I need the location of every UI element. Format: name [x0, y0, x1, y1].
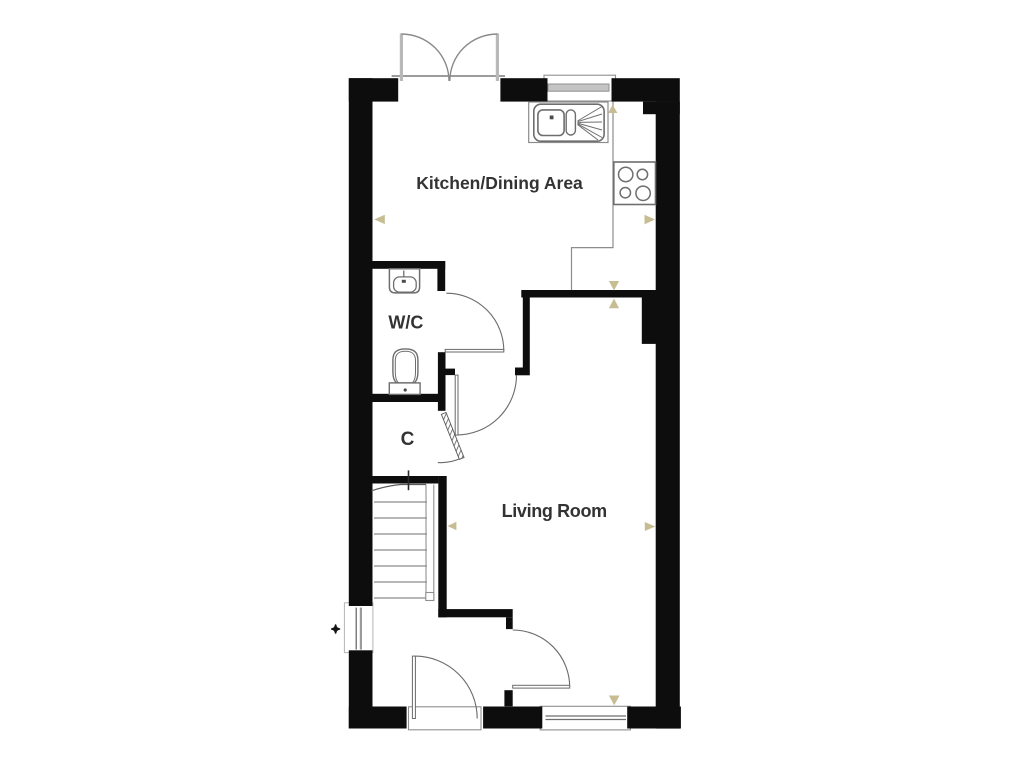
svg-text:Living Room: Living Room [502, 501, 607, 521]
svg-text:C: C [401, 429, 415, 450]
svg-text:Kitchen/Dining Area: Kitchen/Dining Area [416, 173, 583, 193]
svg-text:W/C: W/C [388, 312, 423, 332]
